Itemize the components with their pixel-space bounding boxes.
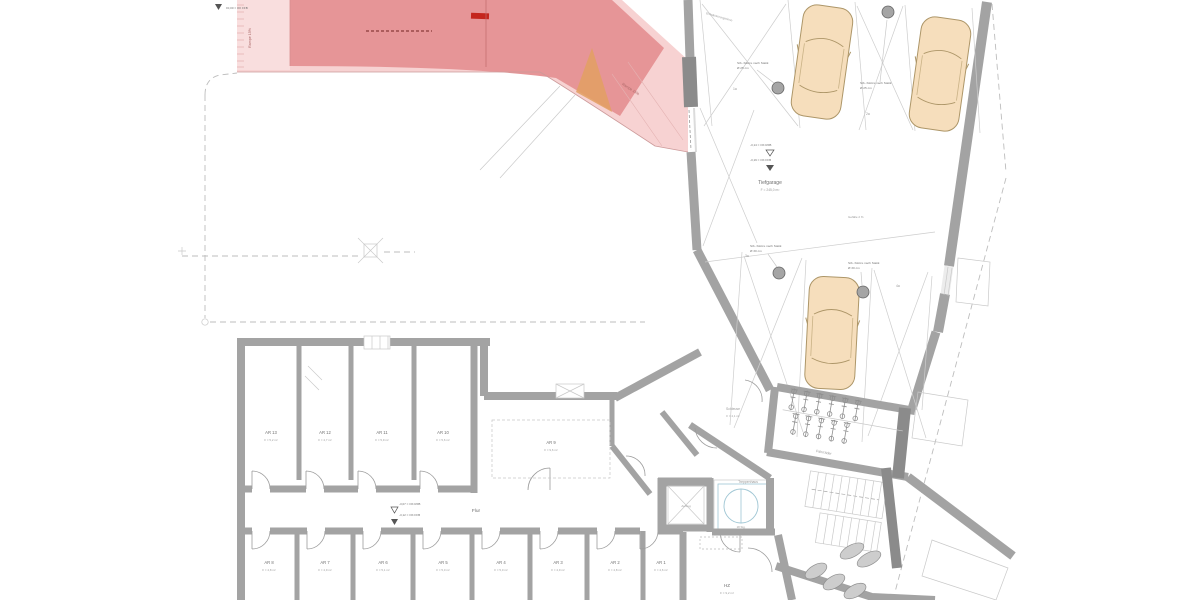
- room-area: F = 4,9 m²: [551, 568, 564, 572]
- bike-icon: [802, 415, 813, 438]
- car-icon: [802, 276, 862, 391]
- column: [772, 82, 784, 94]
- spot-label-1a: 1a: [733, 87, 737, 91]
- floor-plan-canvas: Rampe 15% Rampe 15% ±0,00 = OK FFB 1a 2a: [0, 0, 1200, 600]
- bike-icon: [789, 413, 800, 436]
- heating-room: HZ F = 9,2 m²: [683, 532, 792, 600]
- room-label: AR 10: [437, 430, 449, 435]
- lightshaft-symbol: [358, 238, 383, 263]
- stair-side-wall: [886, 468, 897, 568]
- vestibule: Schleuse F = 4,1 m²: [726, 407, 740, 418]
- column-note: Stb.-Stütze nach Statik: [848, 261, 880, 265]
- level-marker-open: [766, 150, 774, 156]
- room-label: AR 13: [265, 430, 277, 435]
- room-label-hz: HZ: [724, 583, 730, 588]
- column-note-dia: Ø 25 cm: [860, 86, 872, 90]
- room-area-hz: F = 9,2 m²: [720, 591, 734, 595]
- garage-slope-note: Gefälle 2 %: [848, 215, 864, 219]
- vent-marks: [305, 366, 322, 390]
- spot-label-4a: 4a: [896, 284, 900, 288]
- corridor-labels: Flur -3,07 = OK RFB -3,12 = OK FFB: [391, 502, 481, 525]
- room-labels-bottom-row: AR 8 F = 4,8 m² AR 7 F = 4,9 m² AR 6 F =…: [262, 560, 667, 572]
- elevator: Aufzug: [658, 478, 712, 532]
- ramp-start-strip: [237, 0, 290, 70]
- corridor-level-fin: -3,12 = OK FFB: [399, 513, 420, 517]
- column: [882, 6, 894, 18]
- svg-text:±0,00 = OK FFB: ±0,00 = OK FFB: [226, 6, 248, 10]
- room-area: F = 5,6 m²: [436, 438, 449, 442]
- room-label: AR 7: [320, 560, 330, 565]
- room-label: AR 3: [553, 560, 563, 565]
- room-label-treppenhaus: Treppenhaus: [738, 480, 758, 484]
- corridor-level-raw: -3,07 = OK RFB: [399, 502, 420, 506]
- room-area: F = 4,9 m²: [318, 568, 331, 572]
- room-label-mid: AR 9 F = 9,6 m²: [544, 440, 557, 452]
- room-area: F = 5,0 m²: [436, 568, 449, 572]
- column-note-dia: Ø 30 cm: [750, 249, 762, 253]
- room-label-fahrraeder: Fahrräder: [816, 449, 833, 456]
- svg-text:F = 9,6 m²: F = 9,6 m²: [544, 448, 557, 452]
- column-note: Stb.-Stütze nach Statik: [750, 244, 782, 248]
- car-icon: [905, 15, 974, 133]
- column-note-dia: Ø 25 cm: [737, 66, 749, 70]
- room-label: AR 2: [610, 560, 620, 565]
- room-label-tiefgarage: Tiefgarage: [758, 180, 782, 186]
- room-label: AR 12: [319, 430, 331, 435]
- entrance-pillar: [689, 57, 691, 107]
- room-area: F = 5,1 m²: [376, 568, 389, 572]
- spot-label-2a: 2a: [866, 112, 870, 116]
- room-area: F = 5,9 m²: [375, 438, 388, 442]
- room-area: F = 5,0 m²: [494, 568, 507, 572]
- level-marker-filled: [766, 165, 774, 171]
- column-note: Stb.-Stütze nach Statik: [860, 81, 892, 85]
- column-note: Stb.-Stütze nach Statik: [737, 61, 769, 65]
- drain-note: Entwässerungsrinne: [706, 11, 734, 22]
- column: [857, 286, 869, 298]
- outside-outline-bottom-right: [922, 540, 1008, 600]
- room-area: F = 4,7 m²: [318, 438, 331, 442]
- garage-level-fin: -3,19 = OK FFB: [750, 158, 771, 162]
- room-label: AR 5: [438, 560, 448, 565]
- garage-gate-line: [689, 110, 691, 150]
- stair-steps-note: 18 Stg.: [737, 525, 746, 529]
- garage-level-raw: -3,14 = OK RFB: [750, 143, 771, 147]
- bike-icon: [840, 422, 851, 445]
- stairwell: Treppenhaus 18 Stg.: [712, 478, 775, 535]
- room-labels-top-row: AR 13 F = 5,2 m² AR 12 F = 4,7 m² AR 11 …: [264, 430, 449, 442]
- room-label: AR 6: [378, 560, 388, 565]
- garage-ramp: Rampe 15% Rampe 15% ±0,00 = OK FFB: [215, 0, 688, 178]
- bike-icon: [827, 419, 838, 442]
- room-label-schleuse: Schleuse: [726, 407, 740, 411]
- svg-text:AR 9: AR 9: [546, 440, 556, 445]
- room-label: AR 8: [264, 560, 274, 565]
- floor-plan-page: Rampe 15% Rampe 15% ±0,00 = OK FFB 1a 2a: [0, 0, 1200, 600]
- spot-label-3a: 3a: [745, 254, 749, 258]
- ramp-marking-red: [471, 13, 489, 20]
- room-label: AR 4: [496, 560, 506, 565]
- room-label-aufzug: Aufzug: [681, 504, 691, 508]
- column: [773, 267, 785, 279]
- car-icon: [787, 3, 856, 121]
- room-area: F = 4,6 m²: [654, 568, 667, 572]
- room-label: AR 1: [656, 560, 666, 565]
- survey-cross: [178, 247, 186, 255]
- room-label-flur: Flur: [472, 508, 481, 514]
- room-area: F = 4,8 m²: [262, 568, 275, 572]
- room-area-schleuse: F = 4,1 m²: [726, 414, 739, 418]
- bike-icon: [815, 417, 826, 440]
- column-note-dia: Ø 30 cm: [848, 266, 860, 270]
- main-stairs: [800, 471, 888, 552]
- lightwell-outside: [956, 258, 990, 306]
- room-area: F = 4,8 m²: [608, 568, 621, 572]
- level-marker-open: [391, 507, 398, 513]
- level-marker-filled: [391, 519, 398, 525]
- room-area: F = 5,2 m²: [264, 438, 277, 442]
- room-area-tiefgarage: F = 245,0 m²: [761, 188, 781, 192]
- ramp-slope-label-left: Rampe 15%: [248, 27, 252, 48]
- site-survey-lines: [480, 86, 575, 178]
- room-label: AR 11: [376, 430, 388, 435]
